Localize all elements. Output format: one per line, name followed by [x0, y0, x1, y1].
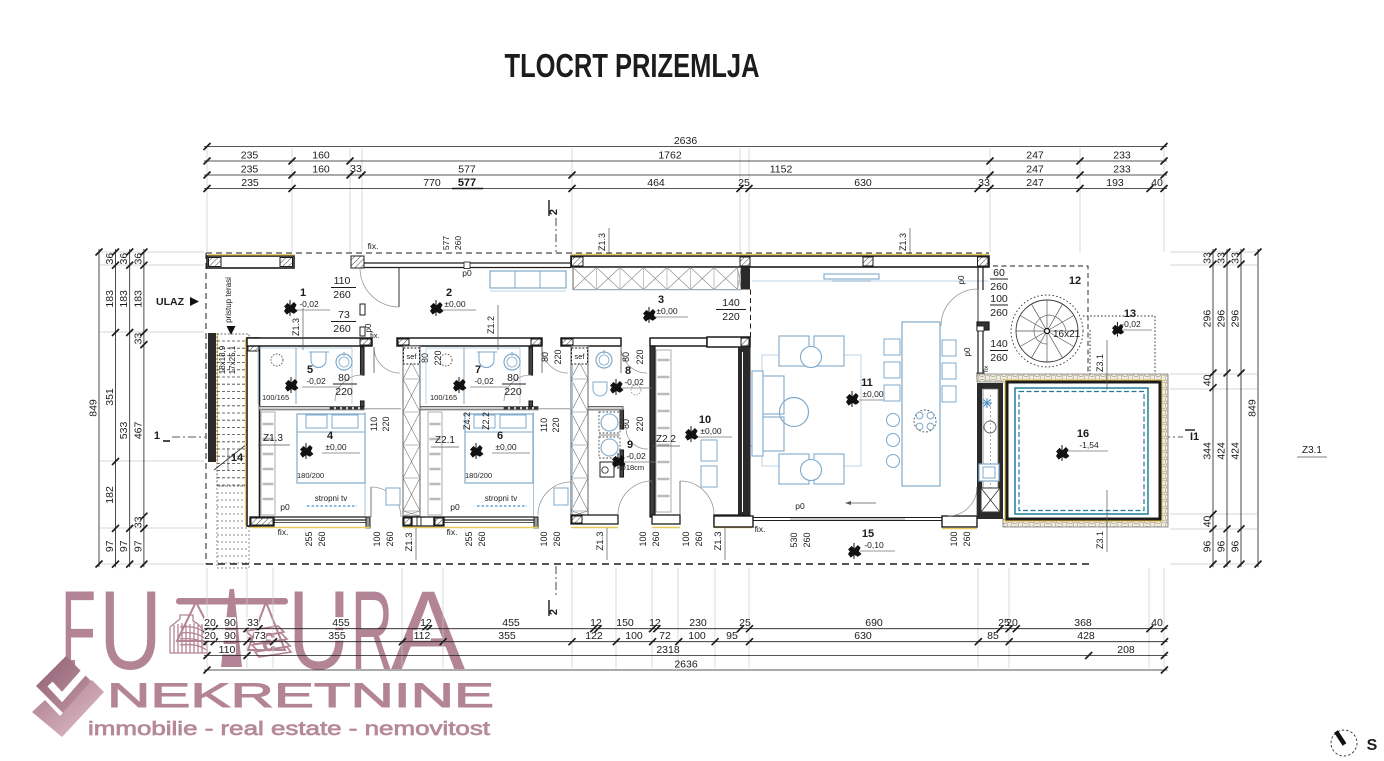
svg-text:577: 577: [458, 177, 476, 189]
svg-text:72: 72: [659, 630, 671, 642]
svg-text:260: 260: [962, 531, 972, 546]
svg-text:-0,02: -0,02: [306, 376, 326, 386]
svg-text:±0,00: ±0,00: [325, 442, 346, 452]
svg-text:18x18,9: 18x18,9: [218, 345, 227, 374]
svg-text:Z1.3: Z1.3: [404, 532, 415, 551]
svg-text:I1: I1: [1190, 431, 1199, 443]
svg-text:247: 247: [1026, 164, 1044, 176]
svg-text:6: 6: [497, 430, 503, 442]
svg-text:122: 122: [585, 630, 603, 642]
svg-text:112: 112: [414, 630, 431, 642]
svg-text:260: 260: [990, 281, 1008, 293]
svg-text:90: 90: [224, 630, 236, 642]
svg-text:455: 455: [332, 617, 350, 629]
svg-text:4: 4: [327, 430, 334, 442]
svg-text:110: 110: [369, 417, 379, 431]
svg-text:-0,02: -0,02: [624, 377, 644, 387]
svg-text:fix.: fix.: [278, 527, 289, 537]
svg-text:80: 80: [621, 352, 631, 362]
svg-text:8: 8: [625, 365, 631, 377]
svg-text:424: 424: [1230, 442, 1242, 460]
svg-text:-0,02: -0,02: [474, 376, 494, 386]
svg-text:33: 33: [350, 163, 362, 175]
svg-text:36: 36: [104, 253, 116, 265]
svg-text:97: 97: [104, 540, 116, 552]
svg-text:9: 9: [627, 439, 633, 451]
svg-text:12: 12: [420, 617, 432, 629]
svg-text:fix.: fix.: [755, 524, 766, 534]
svg-text:±0,00: ±0,00: [656, 306, 677, 316]
svg-text:33: 33: [132, 333, 144, 345]
svg-text:100: 100: [638, 531, 648, 546]
svg-text:Z1.3: Z1.3: [713, 531, 724, 550]
svg-text:pristup terasi: pristup terasi: [224, 277, 233, 323]
svg-text:260: 260: [333, 323, 351, 335]
svg-text:255: 255: [464, 531, 474, 546]
svg-text:36: 36: [118, 253, 130, 265]
svg-text:3: 3: [658, 294, 664, 306]
svg-text:180/200: 180/200: [465, 471, 492, 480]
svg-text:17x25,1: 17x25,1: [228, 345, 237, 374]
svg-text:R: R: [351, 568, 393, 693]
svg-text:-1,54: -1,54: [1079, 440, 1099, 450]
svg-text:Z3.1: Z3.1: [1095, 531, 1105, 549]
svg-text:stropni tv: stropni tv: [485, 494, 517, 503]
svg-text:160: 160: [312, 164, 330, 176]
svg-text:sef: sef: [406, 352, 417, 361]
svg-text:-0,02: -0,02: [299, 299, 319, 309]
svg-text:260: 260: [333, 289, 351, 301]
svg-text:80: 80: [420, 353, 430, 363]
svg-text:235: 235: [241, 150, 259, 162]
svg-text:2636: 2636: [674, 659, 698, 671]
svg-text:220: 220: [381, 416, 391, 431]
svg-text:15: 15: [862, 528, 874, 540]
svg-text:73: 73: [254, 630, 266, 642]
svg-text:±0,00: ±0,00: [495, 442, 516, 452]
svg-text:16x21: 16x21: [1053, 329, 1081, 340]
svg-text:180/200: 180/200: [297, 471, 324, 480]
svg-text:455: 455: [502, 617, 520, 629]
svg-text:NEKRETNINE: NEKRETNINE: [107, 677, 494, 715]
svg-text:296: 296: [1216, 310, 1228, 328]
svg-text:60: 60: [993, 267, 1005, 279]
svg-text:-0,02: -0,02: [626, 451, 646, 461]
svg-text:Z3.1: Z3.1: [1095, 354, 1105, 372]
svg-text:p0: p0: [280, 502, 290, 512]
svg-text:770: 770: [423, 177, 441, 189]
svg-text:2318: 2318: [656, 644, 680, 656]
svg-text:90: 90: [224, 617, 236, 629]
svg-text:351: 351: [104, 388, 116, 406]
svg-text:183: 183: [118, 290, 130, 308]
svg-text:Z1.3: Z1.3: [595, 531, 606, 550]
svg-text:p0: p0: [963, 347, 972, 356]
svg-text:100: 100: [372, 531, 382, 546]
svg-text:220: 220: [335, 386, 353, 398]
svg-text:40: 40: [1202, 374, 1214, 386]
svg-text:368: 368: [1074, 617, 1092, 629]
svg-text:stropni tv: stropni tv: [315, 494, 347, 503]
svg-text:344: 344: [1202, 442, 1214, 460]
svg-text:10: 10: [699, 414, 711, 426]
svg-text:Z2.2: Z2.2: [656, 434, 676, 445]
svg-text:ULAZ: ULAZ: [156, 296, 185, 308]
svg-text:233: 233: [1113, 150, 1131, 162]
svg-text:20: 20: [1006, 617, 1018, 629]
svg-text:183: 183: [132, 290, 144, 308]
svg-text:80: 80: [338, 372, 350, 384]
svg-text:33: 33: [247, 617, 259, 629]
svg-text:fix: fix: [983, 365, 990, 372]
svg-text:14: 14: [231, 452, 244, 464]
svg-text:424: 424: [1216, 442, 1228, 460]
svg-text:220: 220: [433, 350, 443, 365]
svg-text:Z3.1: Z3.1: [1302, 445, 1322, 456]
svg-text:97: 97: [118, 540, 130, 552]
svg-text:100: 100: [625, 630, 643, 642]
svg-text:1: 1: [154, 430, 160, 442]
svg-text:247: 247: [1026, 150, 1044, 162]
svg-text:464: 464: [647, 177, 665, 189]
svg-text:20: 20: [204, 630, 216, 642]
svg-text:428: 428: [1077, 630, 1095, 642]
svg-text:630: 630: [854, 630, 872, 642]
svg-text:260: 260: [990, 307, 1008, 319]
svg-text:80: 80: [507, 372, 519, 384]
svg-text:577: 577: [441, 236, 451, 250]
svg-text:100: 100: [949, 531, 959, 546]
svg-text:260: 260: [802, 532, 812, 547]
svg-text:Ø18cm: Ø18cm: [620, 463, 644, 472]
svg-text:Z1.3: Z1.3: [291, 318, 301, 336]
svg-text:36: 36: [132, 253, 144, 265]
svg-text:40: 40: [1151, 617, 1163, 629]
svg-text:80: 80: [540, 352, 550, 362]
svg-text:220: 220: [635, 416, 645, 431]
svg-text:100: 100: [990, 293, 1008, 305]
svg-text:73: 73: [338, 309, 350, 321]
svg-text:sef: sef: [574, 352, 585, 361]
svg-text:TLOCRT PRIZEMLJA: TLOCRT PRIZEMLJA: [505, 47, 760, 84]
svg-text:25: 25: [738, 177, 750, 189]
svg-text:11: 11: [861, 377, 873, 389]
svg-text:33: 33: [1202, 252, 1214, 264]
svg-text:260: 260: [990, 352, 1008, 364]
svg-text:220: 220: [551, 417, 561, 432]
svg-text:12: 12: [649, 617, 661, 629]
svg-text:182: 182: [104, 486, 116, 504]
svg-text:849: 849: [1247, 399, 1259, 417]
svg-text:100: 100: [539, 531, 549, 546]
svg-text:Z2.2: Z2.2: [481, 412, 491, 430]
svg-text:530: 530: [789, 532, 799, 547]
svg-text:150: 150: [616, 617, 634, 629]
svg-text:40: 40: [1151, 177, 1163, 189]
svg-text:220: 220: [635, 349, 645, 364]
svg-text:849: 849: [88, 399, 100, 417]
svg-text:260: 260: [477, 531, 487, 546]
svg-text:95: 95: [726, 630, 738, 642]
svg-text:2: 2: [446, 287, 452, 299]
svg-text:235: 235: [241, 164, 259, 176]
svg-text:260: 260: [552, 531, 562, 546]
svg-text:260: 260: [651, 531, 661, 546]
svg-text:p0: p0: [462, 268, 472, 278]
svg-text:193: 193: [1106, 177, 1124, 189]
svg-text:20: 20: [204, 617, 216, 629]
svg-text:85: 85: [987, 630, 999, 642]
svg-text:Z1.2: Z1.2: [486, 316, 496, 334]
svg-text:255: 255: [304, 531, 314, 546]
svg-text:±0,00: ±0,00: [862, 389, 883, 399]
svg-text:fix.: fix.: [368, 241, 379, 251]
svg-text:220: 220: [553, 349, 563, 364]
svg-text:233: 233: [1113, 164, 1131, 176]
svg-text:690: 690: [865, 617, 883, 629]
svg-text:2: 2: [548, 209, 560, 215]
svg-text:533: 533: [118, 422, 130, 440]
svg-text:296: 296: [1230, 310, 1242, 328]
svg-text:40: 40: [1202, 515, 1214, 527]
svg-text:183: 183: [104, 290, 116, 308]
svg-text:97: 97: [132, 540, 144, 552]
svg-text:±0,00: ±0,00: [700, 426, 721, 436]
svg-text:Z1.3: Z1.3: [263, 433, 283, 444]
svg-text:220: 220: [504, 386, 522, 398]
svg-text:208: 208: [1117, 644, 1135, 656]
svg-text:260: 260: [453, 236, 463, 250]
svg-text:±0,00: ±0,00: [444, 299, 465, 309]
svg-text:96: 96: [1230, 540, 1242, 552]
svg-text:p0: p0: [450, 502, 460, 512]
svg-text:1762: 1762: [658, 150, 682, 162]
svg-text:467: 467: [132, 421, 144, 439]
svg-text:p0: p0: [795, 501, 805, 511]
svg-text:fix.: fix.: [447, 527, 458, 537]
svg-text:1: 1: [300, 287, 306, 299]
svg-text:630: 630: [854, 177, 872, 189]
svg-text:260: 260: [694, 531, 704, 546]
svg-text:100: 100: [681, 531, 691, 546]
svg-text:2636: 2636: [674, 135, 698, 147]
svg-text:7: 7: [475, 364, 481, 376]
svg-text:U: U: [99, 568, 162, 693]
svg-text:260: 260: [317, 531, 327, 546]
svg-text:-0,02: -0,02: [1121, 319, 1141, 329]
svg-text:5: 5: [307, 364, 313, 376]
svg-text:96: 96: [1202, 540, 1214, 552]
svg-text:110: 110: [334, 275, 351, 287]
svg-text:110: 110: [219, 644, 236, 656]
svg-text:140: 140: [722, 297, 740, 309]
svg-text:-0,10: -0,10: [864, 540, 884, 550]
svg-text:immobilie - real estate - nemo: immobilie - real estate - nemovitost: [88, 718, 491, 740]
svg-text:33: 33: [132, 516, 144, 528]
svg-text:220: 220: [722, 311, 740, 323]
svg-text:140: 140: [990, 338, 1008, 350]
svg-text:110: 110: [539, 418, 549, 432]
svg-text:33: 33: [1216, 252, 1228, 264]
svg-text:355: 355: [328, 630, 346, 642]
svg-text:16: 16: [1077, 428, 1089, 440]
svg-text:1152: 1152: [770, 164, 793, 176]
svg-text:235: 235: [241, 177, 259, 189]
svg-text:Z1.3: Z1.3: [898, 233, 908, 251]
svg-text:Z1.3: Z1.3: [597, 233, 607, 251]
svg-text:260: 260: [385, 531, 395, 546]
svg-text:100/165: 100/165: [262, 393, 289, 402]
svg-text:355: 355: [498, 630, 516, 642]
svg-text:p0: p0: [957, 275, 966, 284]
svg-text:100/165: 100/165: [430, 393, 457, 402]
svg-text:230: 230: [689, 617, 707, 629]
svg-text:160: 160: [312, 150, 330, 162]
svg-text:100: 100: [688, 630, 706, 642]
svg-text:577: 577: [458, 164, 476, 176]
svg-text:2: 2: [548, 609, 560, 615]
svg-text:80: 80: [621, 419, 631, 429]
svg-text:12: 12: [590, 617, 602, 629]
svg-text:Z4.2: Z4.2: [462, 412, 472, 430]
svg-text:96: 96: [1216, 540, 1228, 552]
svg-text:S: S: [1367, 737, 1378, 754]
svg-text:33: 33: [1230, 252, 1242, 264]
svg-text:25: 25: [739, 617, 751, 629]
svg-text:247: 247: [1026, 177, 1044, 189]
svg-text:Z2.1: Z2.1: [435, 435, 455, 446]
svg-text:12: 12: [1069, 275, 1081, 287]
svg-text:296: 296: [1202, 310, 1214, 328]
svg-text:33: 33: [978, 177, 990, 189]
